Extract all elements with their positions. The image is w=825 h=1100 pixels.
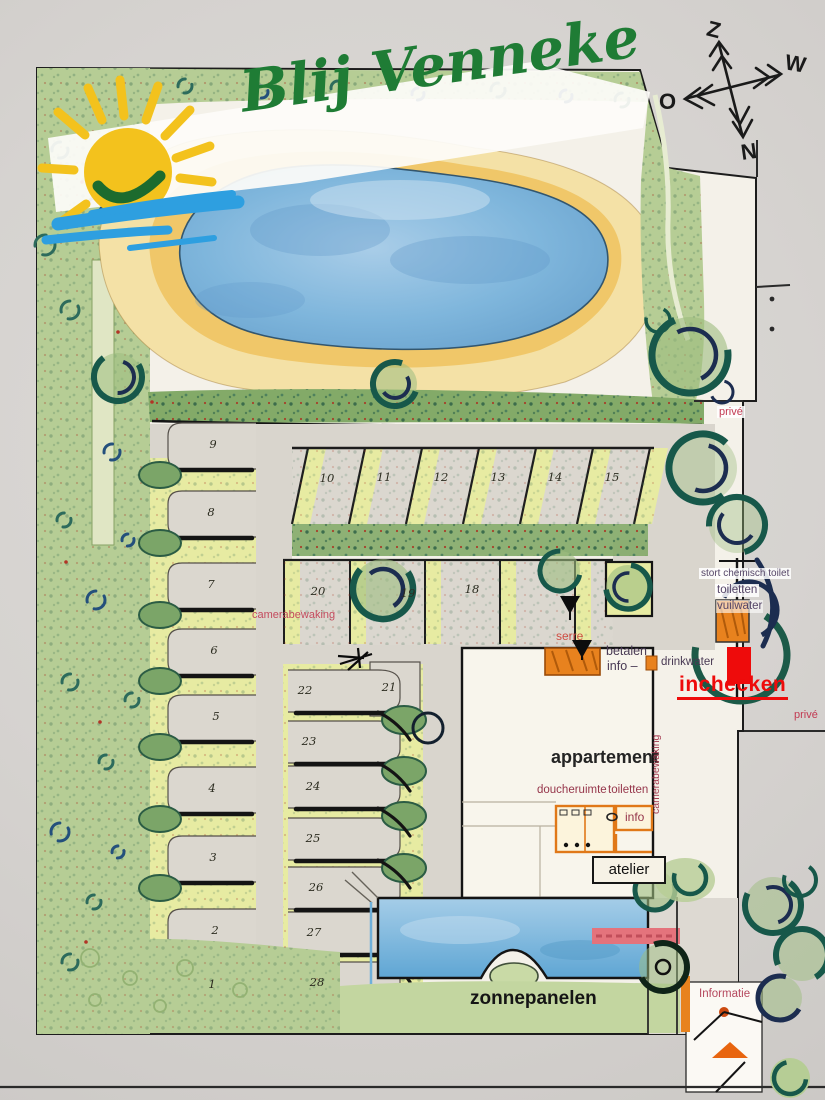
- pitch-number-6: 6: [210, 643, 217, 657]
- pitch-number-3: 3: [209, 850, 216, 864]
- compass-label-n: N: [739, 139, 758, 165]
- pitch-number-7: 7: [207, 577, 214, 591]
- label-betalen: betalen: [606, 645, 647, 659]
- pitch-number-4: 4: [208, 781, 215, 795]
- label-stort-chemisch-toilet: stort chemisch toilet: [699, 568, 791, 579]
- campsite-map: Blij Venneke Z W O N privé privé stort c…: [0, 0, 825, 1100]
- pitch-number-25: 25: [306, 831, 321, 845]
- pitch-number-23: 23: [302, 734, 317, 748]
- pitch-number-19: 19: [401, 586, 416, 600]
- label-inchecken: inchecken: [677, 673, 788, 700]
- label-toiletten-right: toiletten: [715, 584, 759, 597]
- pitch-number-11: 11: [377, 470, 392, 484]
- pitch-number-9: 9: [209, 437, 216, 451]
- pitch-number-27: 27: [307, 925, 322, 939]
- pitch-number-15: 15: [605, 470, 620, 484]
- compass-label-z: Z: [704, 17, 723, 44]
- label-info-building: info: [625, 811, 644, 824]
- pitch-number-10: 10: [320, 471, 335, 485]
- pitch-number-1: 1: [208, 977, 215, 991]
- label-appartement: appartement: [551, 748, 659, 768]
- compass-label-w: W: [783, 50, 808, 77]
- pitch-number-20: 20: [311, 584, 326, 598]
- pitch-number-28: 28: [310, 975, 325, 989]
- pitch-number-2: 2: [211, 923, 218, 937]
- label-drinkwater: drinkwater: [661, 656, 714, 669]
- pitch-number-13: 13: [491, 470, 506, 484]
- pitch-number-22: 22: [298, 683, 313, 697]
- label-doucheruimte: doucheruimte: [537, 784, 607, 797]
- pitch-number-21: 21: [382, 680, 397, 694]
- label-zonnepanelen: zonnepanelen: [470, 989, 597, 1010]
- site-title: Blij Venneke: [220, 4, 660, 127]
- pitch-number-18: 18: [465, 582, 480, 596]
- pitch-number-24: 24: [306, 779, 321, 793]
- pitch-number-14: 14: [548, 470, 563, 484]
- compass-label-o: O: [659, 90, 676, 114]
- label-info-betalen: info –: [607, 660, 638, 674]
- label-informatie: Informatie: [699, 988, 750, 1001]
- label-vuilwater: vuilwater: [716, 600, 763, 613]
- label-prive-top: privé: [717, 406, 745, 418]
- label-prive-bottom: privé: [794, 709, 818, 721]
- label-camerabewaking-right: camerabewaking: [651, 735, 663, 814]
- label-camerabewaking-left: camerabewaking: [252, 609, 335, 621]
- label-serre: serre: [556, 630, 583, 643]
- pitch-number-8: 8: [207, 505, 214, 519]
- pitch-number-5: 5: [212, 709, 219, 723]
- pitch-number-26: 26: [309, 880, 324, 894]
- label-toiletten-building: toiletten: [608, 784, 648, 797]
- pitch-number-12: 12: [434, 470, 449, 484]
- label-atelier: atelier: [592, 856, 666, 884]
